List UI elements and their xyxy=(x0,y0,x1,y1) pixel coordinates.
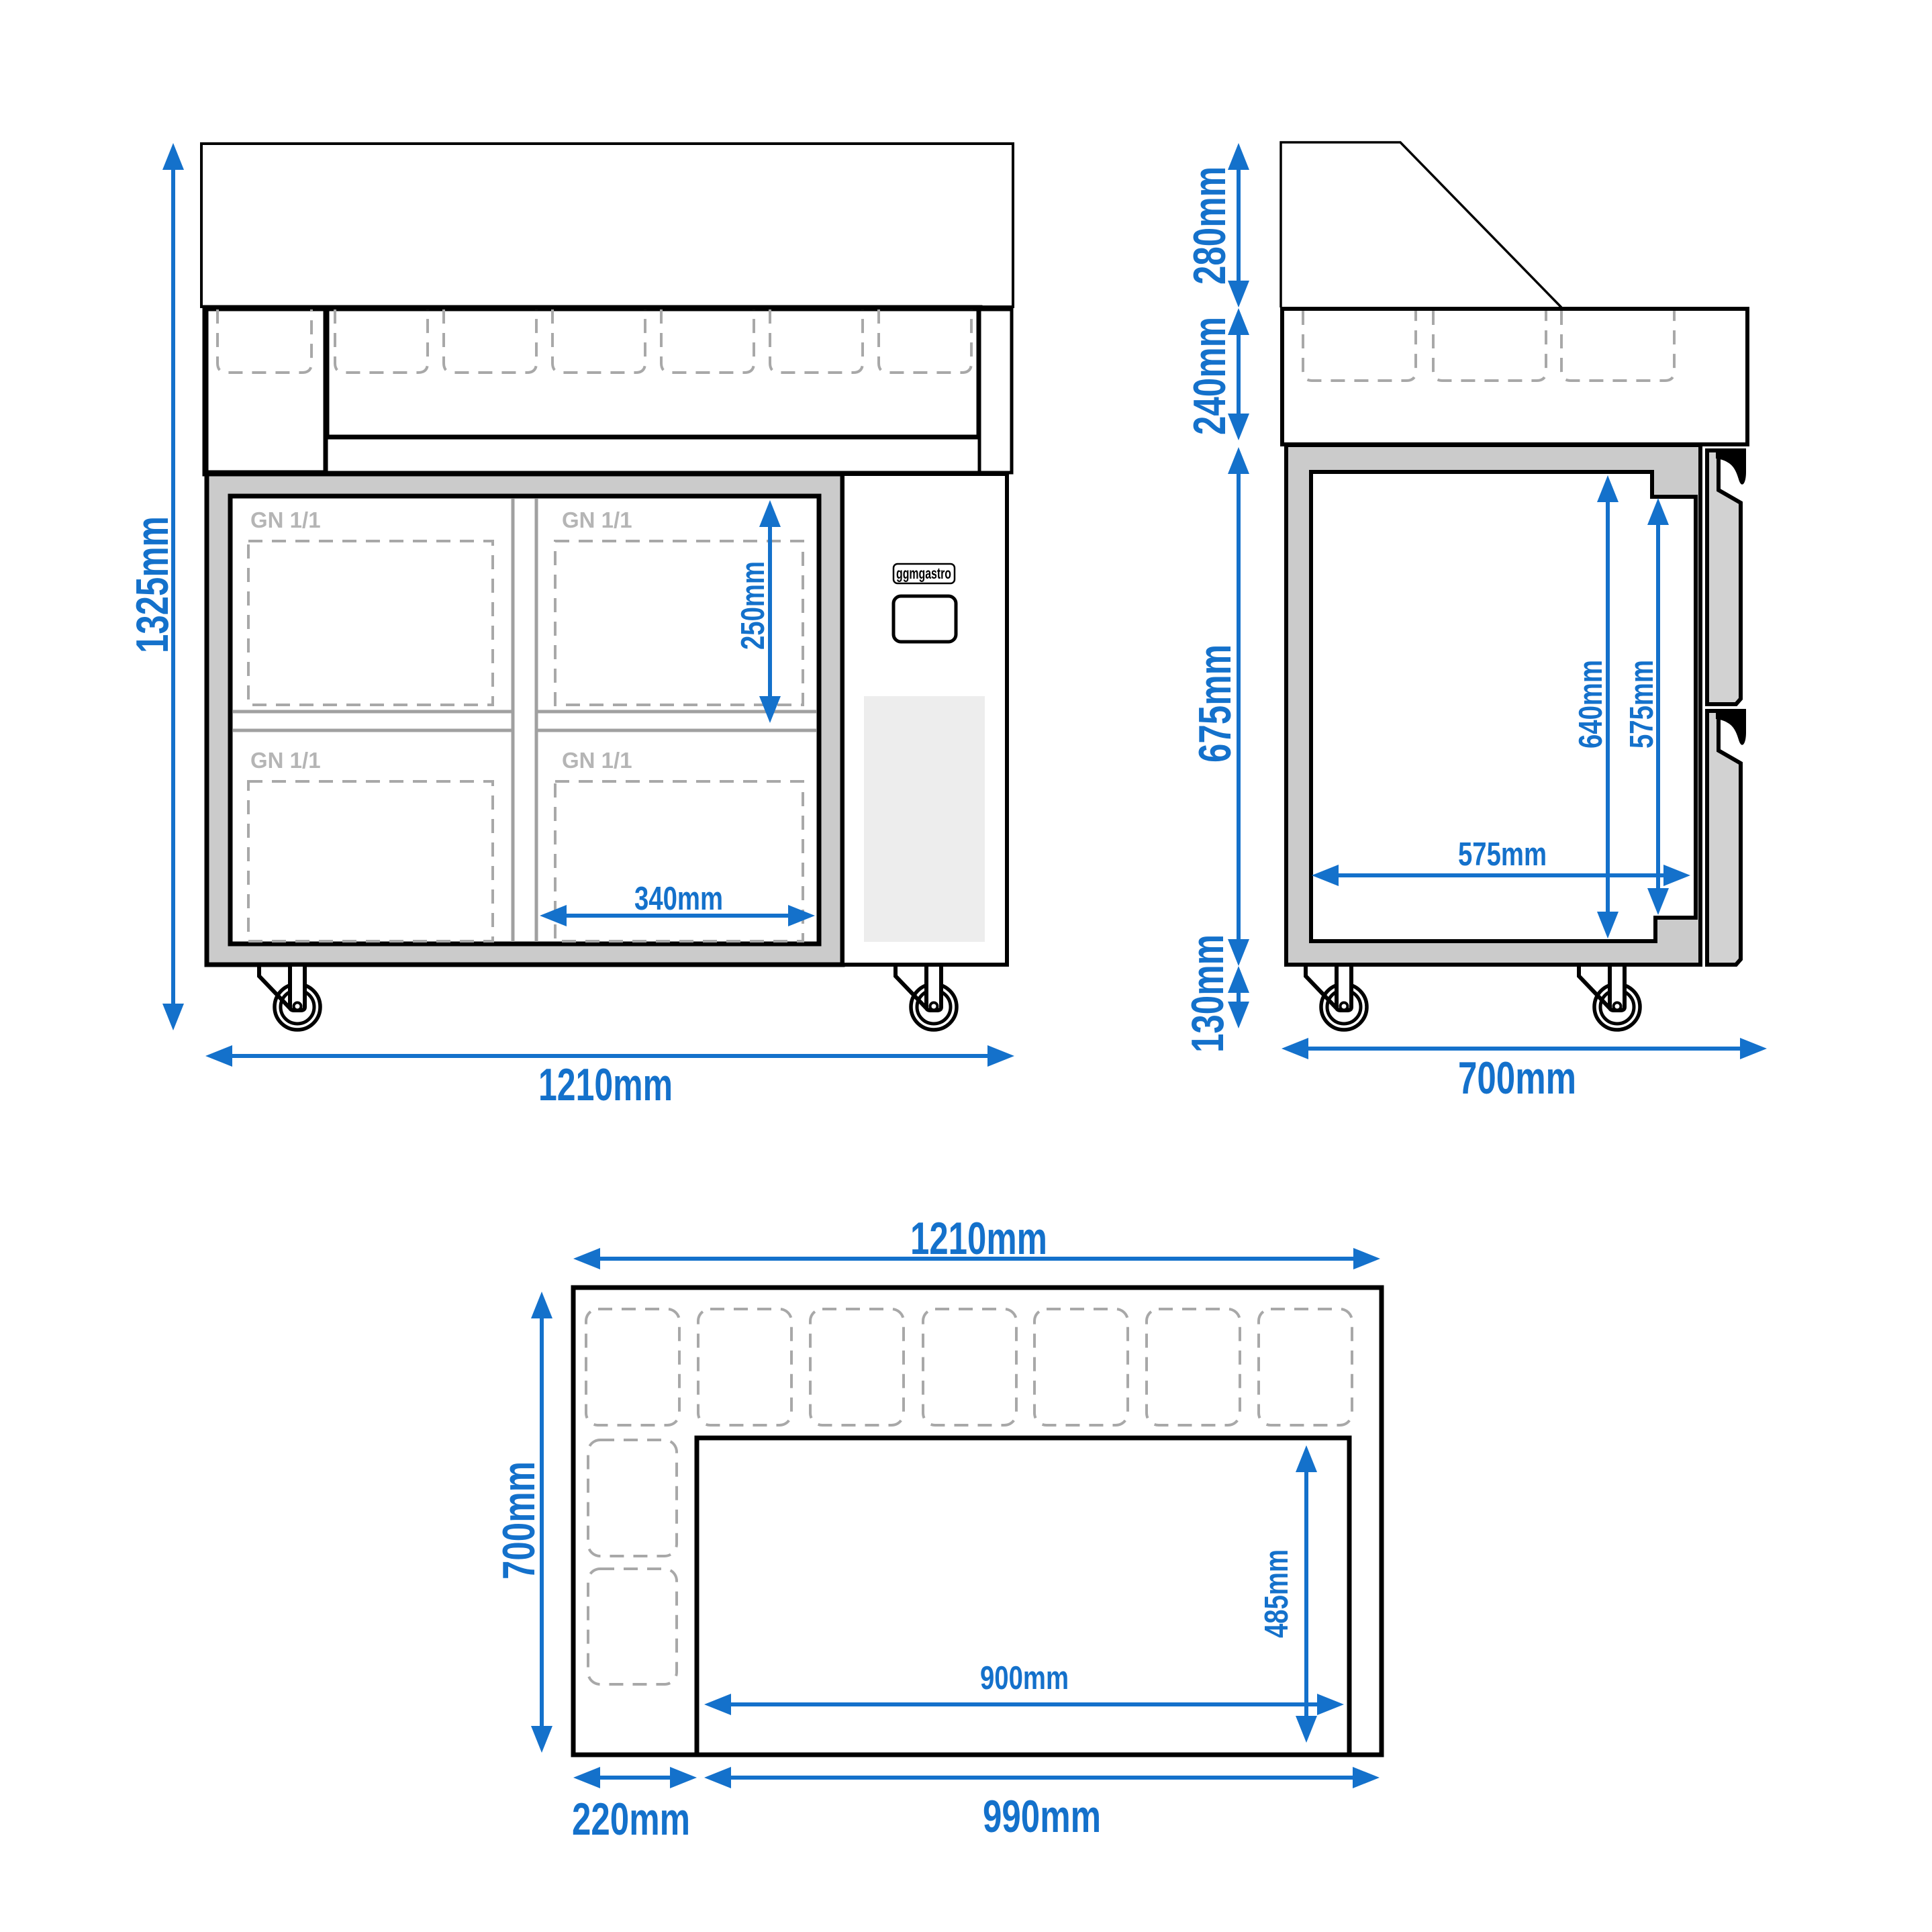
svg-text:575mm: 575mm xyxy=(1624,660,1660,748)
svg-text:GN 1/1: GN 1/1 xyxy=(250,508,321,532)
svg-text:575mm: 575mm xyxy=(1458,836,1547,873)
svg-text:700mm: 700mm xyxy=(493,1461,544,1580)
svg-text:GN 1/1: GN 1/1 xyxy=(562,748,632,773)
svg-text:220mm: 220mm xyxy=(572,1794,690,1845)
svg-text:900mm: 900mm xyxy=(980,1660,1069,1696)
svg-text:1210mm: 1210mm xyxy=(910,1213,1047,1264)
svg-text:1325mm: 1325mm xyxy=(127,516,178,653)
svg-text:GN 1/1: GN 1/1 xyxy=(250,748,321,773)
svg-text:675mm: 675mm xyxy=(1190,644,1241,763)
svg-text:485mm: 485mm xyxy=(1259,1549,1295,1638)
svg-text:340mm: 340mm xyxy=(634,881,723,917)
svg-text:ggmgastro: ggmgastro xyxy=(896,565,951,582)
svg-text:250mm: 250mm xyxy=(735,561,771,650)
svg-text:700mm: 700mm xyxy=(1458,1053,1576,1104)
svg-text:640mm: 640mm xyxy=(1573,660,1609,748)
svg-text:GN 1/1: GN 1/1 xyxy=(562,508,632,532)
svg-text:1210mm: 1210mm xyxy=(538,1059,673,1110)
svg-text:990mm: 990mm xyxy=(983,1791,1101,1842)
svg-text:280mm: 280mm xyxy=(1184,166,1235,285)
svg-text:240mm: 240mm xyxy=(1184,317,1235,435)
svg-text:130mm: 130mm xyxy=(1182,934,1233,1053)
